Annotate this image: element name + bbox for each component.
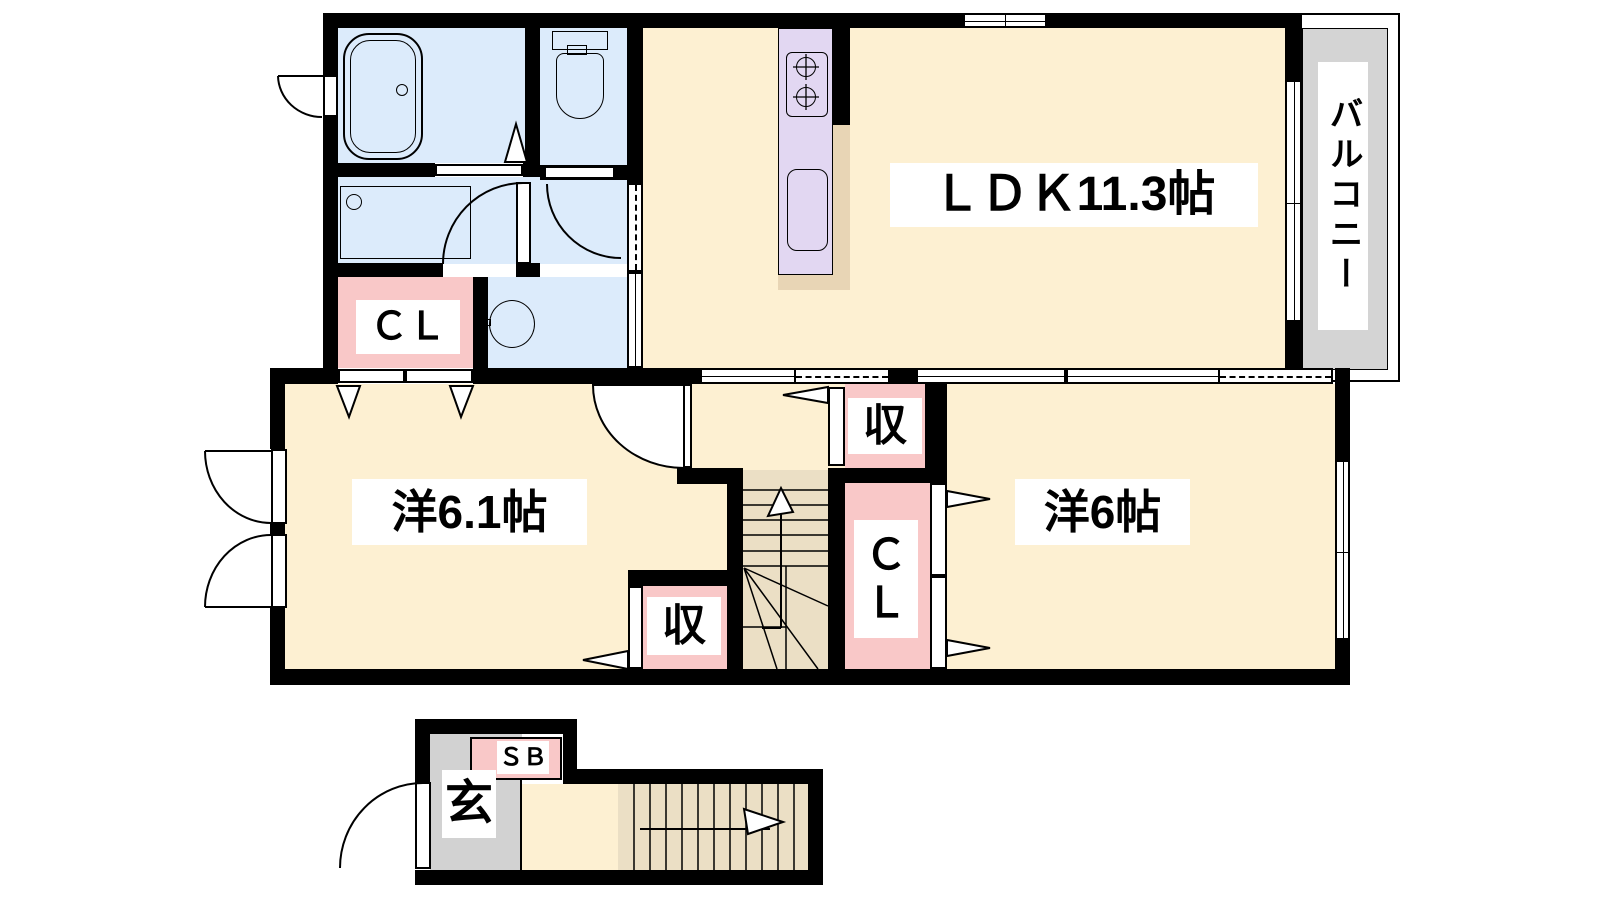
- closet-center-label: ＣＬ: [854, 520, 918, 638]
- stairs-upper-floor: [743, 470, 828, 669]
- bathroom-window-leaf: [323, 75, 338, 117]
- wall: [1285, 13, 1302, 80]
- closet-center-door-leaf-2: [930, 576, 947, 669]
- balcony-sliding-door: [1285, 80, 1302, 322]
- window-left-leaf-2: [271, 534, 287, 608]
- sliding-door-hall-ldk: [700, 368, 796, 384]
- room-right-label: 洋6帖: [1015, 479, 1190, 545]
- sliding-door-room-right-2: [1066, 368, 1220, 384]
- wall: [473, 277, 488, 368]
- wall: [677, 468, 743, 484]
- washroom-door-leaf: [516, 182, 531, 264]
- ldk-label: ＬＤＫ11.3帖: [890, 163, 1258, 227]
- genkan-step-line: [520, 780, 522, 870]
- wall: [323, 163, 435, 177]
- wall: [828, 468, 845, 669]
- wall: [628, 570, 743, 586]
- washer-drain: [346, 194, 362, 210]
- burner-2: [796, 87, 816, 107]
- window-left-leaf-1: [271, 449, 287, 524]
- room-left-label: 洋6.1帖: [352, 479, 587, 545]
- entrance-door-leaf: [415, 782, 431, 869]
- sliding-pocket: [1220, 368, 1333, 384]
- closet-center-door-leaf-1: [930, 483, 947, 576]
- wall: [516, 263, 540, 277]
- wall: [808, 769, 823, 870]
- wall: [563, 727, 577, 774]
- wall: [473, 368, 700, 384]
- bathroom-door-opening: [435, 164, 523, 176]
- sliding-door-vanity-ldk: [627, 272, 643, 368]
- storage-lower-label: 収: [647, 597, 721, 655]
- stairs-lower-floor: [618, 784, 808, 870]
- wall: [525, 28, 540, 177]
- wall: [415, 719, 430, 782]
- wall: [1047, 13, 1302, 28]
- room-left-door-leaf: [677, 384, 692, 468]
- shoe-box-label: ＳＢ: [497, 741, 549, 774]
- wall: [833, 28, 850, 125]
- wall: [323, 263, 443, 277]
- bathtub-drain: [396, 84, 408, 96]
- toilet-door-opening: [544, 166, 615, 179]
- closet-upper-door-2: [405, 369, 473, 383]
- burner-1: [796, 57, 816, 77]
- storage-hall-label: 収: [848, 398, 922, 454]
- balcony-label: バルコニー: [1318, 62, 1368, 330]
- wall: [1335, 368, 1350, 460]
- wall: [323, 117, 338, 368]
- washroom-door-opening: [443, 264, 516, 276]
- wall: [270, 368, 285, 449]
- closet-upper-door-1: [338, 369, 405, 383]
- entrance-label: 玄: [442, 770, 496, 838]
- sliding-pocket: [796, 368, 890, 384]
- kitchen-sink: [787, 169, 828, 251]
- sliding-pocket-vertical: [627, 185, 643, 272]
- window-right: [1335, 460, 1350, 640]
- storage-hall-door-leaf: [828, 387, 845, 466]
- wall: [627, 13, 643, 185]
- closet-upper-label: ＣＬ: [356, 300, 460, 354]
- entrance-hall-floor: [522, 784, 618, 870]
- wall: [1335, 640, 1350, 669]
- wall: [563, 769, 823, 784]
- wall: [415, 870, 823, 885]
- sliding-door-room-right-1: [916, 368, 1066, 384]
- window-top: [963, 13, 1047, 28]
- wall: [925, 384, 947, 468]
- wall: [890, 368, 916, 384]
- wall: [270, 669, 1350, 685]
- wall: [323, 13, 963, 28]
- bathtub-inner: [350, 40, 416, 153]
- wall: [323, 13, 338, 75]
- wall: [415, 719, 577, 734]
- toilet-bowl: [556, 53, 604, 119]
- wash-basin: [489, 300, 535, 348]
- floor-plan: ＬＤＫ11.3帖 洋6.1帖 洋6帖 バルコニー ＣＬ 収 ＣＬ 収 ＳＢ 玄: [0, 0, 1600, 900]
- storage-lower-door-leaf: [628, 586, 643, 669]
- wall: [845, 468, 947, 483]
